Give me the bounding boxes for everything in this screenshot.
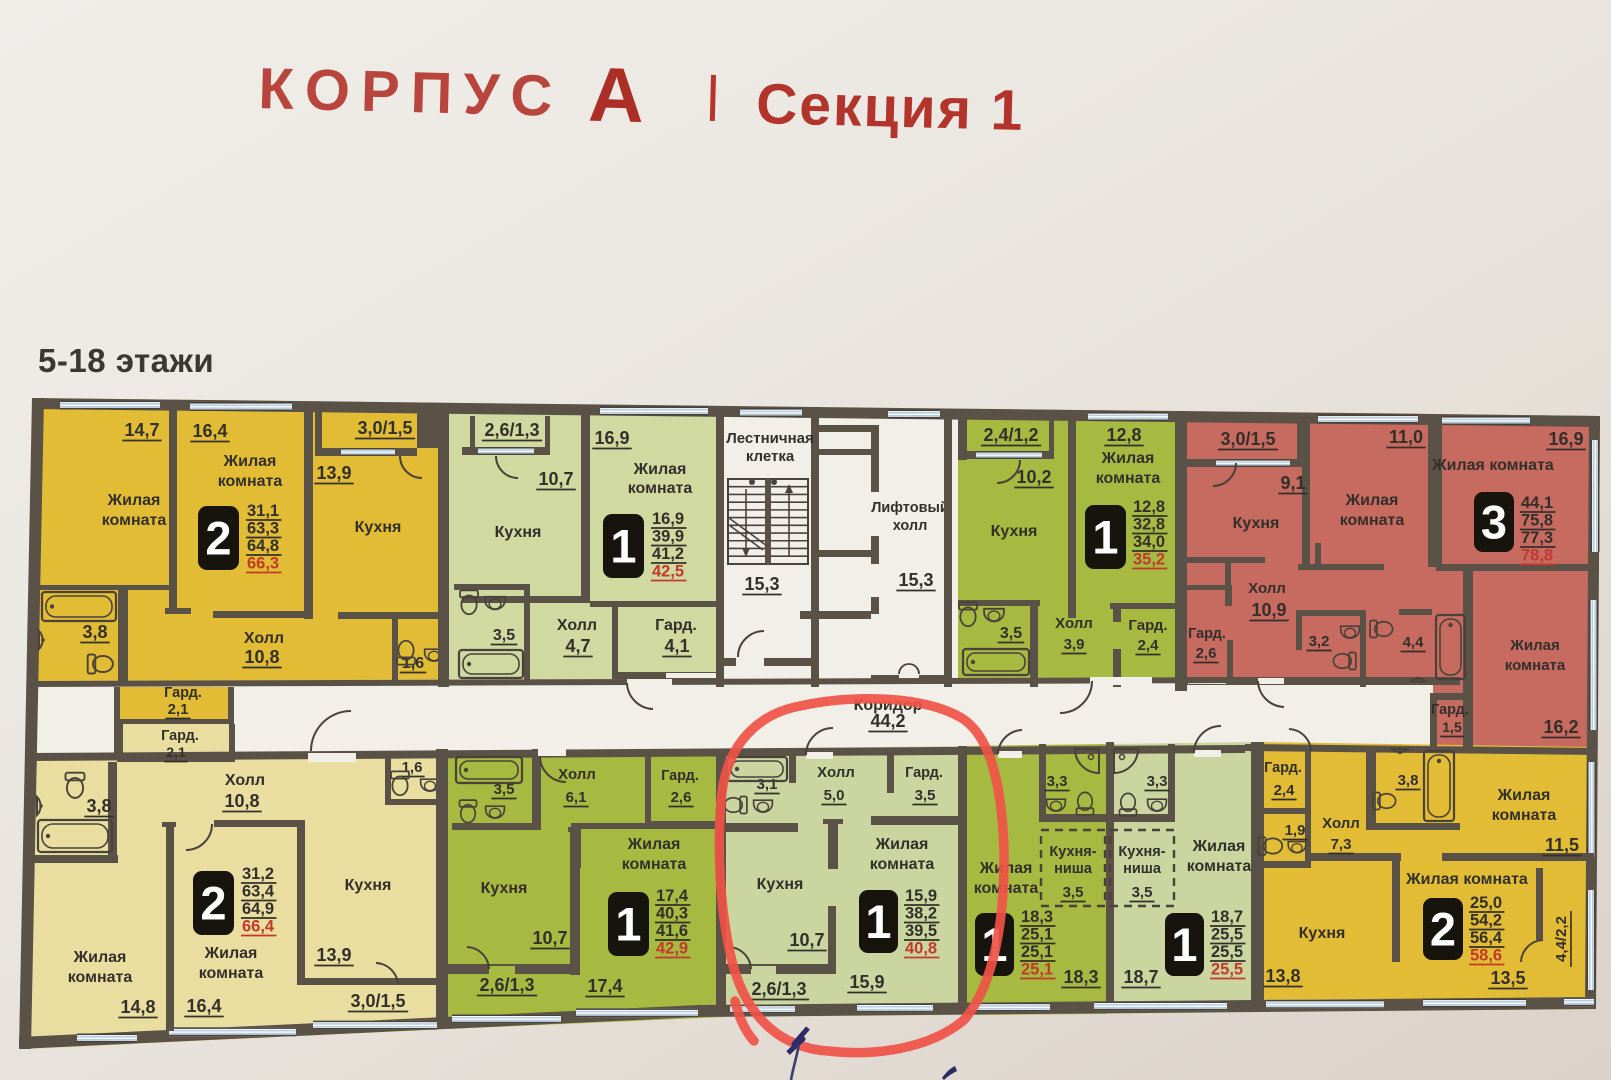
svg-text:2,6/1,3: 2,6/1,3 xyxy=(484,420,539,440)
svg-text:25,1: 25,1 xyxy=(1021,926,1053,944)
svg-text:комната: комната xyxy=(218,473,283,490)
svg-text:Холл: Холл xyxy=(225,772,265,789)
svg-text:Холл: Холл xyxy=(1055,615,1093,632)
svg-text:Жилая: Жилая xyxy=(633,461,687,478)
svg-text:Жилая: Жилая xyxy=(1345,492,1399,509)
svg-text:1: 1 xyxy=(1092,511,1118,564)
svg-text:комната: комната xyxy=(1096,470,1161,487)
svg-text:3,0/1,5: 3,0/1,5 xyxy=(357,418,412,438)
svg-text:Гард.: Гард. xyxy=(164,685,202,701)
svg-text:10,2: 10,2 xyxy=(1016,467,1051,487)
svg-text:10,8: 10,8 xyxy=(224,791,259,811)
svg-text:63,3: 63,3 xyxy=(247,520,279,538)
svg-text:14,8: 14,8 xyxy=(120,997,155,1017)
svg-text:25,1: 25,1 xyxy=(1021,943,1053,961)
svg-text:комната: комната xyxy=(68,969,133,986)
svg-text:2,6: 2,6 xyxy=(671,789,692,806)
svg-text:4,1: 4,1 xyxy=(664,636,689,656)
svg-text:54,2: 54,2 xyxy=(1470,912,1502,930)
svg-text:3,5: 3,5 xyxy=(1000,625,1022,642)
svg-text:Гард.: Гард. xyxy=(1431,702,1469,718)
svg-text:2: 2 xyxy=(205,512,231,565)
svg-text:63,4: 63,4 xyxy=(242,883,275,901)
svg-text:13,9: 13,9 xyxy=(316,463,351,483)
svg-text:17,4: 17,4 xyxy=(587,976,622,996)
svg-text:Гард.: Гард. xyxy=(1128,617,1167,634)
svg-text:10,9: 10,9 xyxy=(1251,600,1286,620)
svg-text:3: 3 xyxy=(1481,496,1507,549)
svg-text:Жилая: Жилая xyxy=(107,492,161,509)
svg-text:Лестничная: Лестничная xyxy=(726,430,814,447)
svg-text:66,3: 66,3 xyxy=(247,555,279,573)
svg-text:Жилая: Жилая xyxy=(627,836,681,853)
svg-text:5,0: 5,0 xyxy=(824,787,845,804)
svg-text:Кухня: Кухня xyxy=(345,877,392,894)
svg-text:Гард.: Гард. xyxy=(905,765,943,781)
svg-text:58,6: 58,6 xyxy=(1470,947,1502,965)
svg-text:34,0: 34,0 xyxy=(1133,533,1165,551)
svg-text:ниша: ниша xyxy=(1123,861,1162,877)
svg-text:Кухня-: Кухня- xyxy=(1118,844,1165,860)
svg-text:КОРПУС: КОРПУС xyxy=(258,56,564,129)
svg-text:комната: комната xyxy=(102,512,167,529)
svg-text:10,7: 10,7 xyxy=(789,930,824,950)
svg-text:комната: комната xyxy=(1505,657,1566,674)
svg-text:13,9: 13,9 xyxy=(316,945,351,965)
svg-text:2: 2 xyxy=(1430,903,1456,956)
svg-text:15,3: 15,3 xyxy=(744,574,779,594)
svg-text:44,2: 44,2 xyxy=(870,711,905,731)
svg-text:40,3: 40,3 xyxy=(656,905,688,923)
svg-text:40,8: 40,8 xyxy=(905,940,937,958)
svg-text:12,8: 12,8 xyxy=(1106,425,1141,445)
svg-text:3,8: 3,8 xyxy=(86,796,111,816)
svg-text:Жилая: Жилая xyxy=(1101,450,1155,467)
svg-text:Гард.: Гард. xyxy=(1188,626,1226,642)
svg-text:77,3: 77,3 xyxy=(1521,529,1553,547)
svg-text:Холл: Холл xyxy=(558,766,596,783)
svg-text:комната: комната xyxy=(1492,807,1557,824)
svg-text:41,6: 41,6 xyxy=(656,922,688,940)
svg-text:комната: комната xyxy=(870,856,935,873)
svg-text:64,9: 64,9 xyxy=(242,900,274,918)
svg-text:13,5: 13,5 xyxy=(1490,968,1525,988)
svg-text:41,2: 41,2 xyxy=(652,545,684,563)
svg-text:Кухня: Кухня xyxy=(757,876,804,893)
svg-text:11,5: 11,5 xyxy=(1545,835,1579,855)
svg-text:2: 2 xyxy=(200,877,226,930)
svg-text:75,8: 75,8 xyxy=(1521,512,1553,530)
svg-text:25,5: 25,5 xyxy=(1211,961,1243,979)
svg-text:3,5: 3,5 xyxy=(915,787,936,804)
svg-text:2,1: 2,1 xyxy=(166,744,186,760)
svg-text:3,0/1,5: 3,0/1,5 xyxy=(350,991,405,1011)
svg-text:16,9: 16,9 xyxy=(652,510,684,528)
svg-text:А: А xyxy=(587,52,645,139)
svg-text:холл: холл xyxy=(893,518,928,534)
svg-text:3,8: 3,8 xyxy=(82,622,107,642)
svg-text:2,4/1,2: 2,4/1,2 xyxy=(983,425,1038,445)
svg-text:Гард.: Гард. xyxy=(661,768,699,784)
svg-text:1,9: 1,9 xyxy=(1285,822,1306,839)
svg-text:Жилая: Жилая xyxy=(204,945,258,962)
svg-text:42,5: 42,5 xyxy=(652,563,684,581)
svg-text:25,5: 25,5 xyxy=(1211,943,1243,961)
svg-text:12,8: 12,8 xyxy=(1133,498,1165,516)
svg-text:32,8: 32,8 xyxy=(1133,516,1165,534)
svg-text:Холл: Холл xyxy=(244,630,284,647)
svg-text:10,8: 10,8 xyxy=(244,647,279,667)
svg-text:39,9: 39,9 xyxy=(652,528,684,546)
svg-text:14,7: 14,7 xyxy=(124,420,159,440)
svg-text:38,2: 38,2 xyxy=(905,905,937,923)
svg-text:15,9: 15,9 xyxy=(905,887,937,905)
svg-text:Жилая комната: Жилая комната xyxy=(1405,871,1528,888)
svg-text:25,1: 25,1 xyxy=(1021,961,1053,979)
svg-text:комната: комната xyxy=(628,480,693,497)
svg-text:10,7: 10,7 xyxy=(538,469,573,489)
svg-text:42,9: 42,9 xyxy=(656,940,688,958)
svg-text:Жилая: Жилая xyxy=(73,949,127,966)
svg-text:Жилая: Жилая xyxy=(875,836,929,853)
svg-text:Кухня-: Кухня- xyxy=(1049,844,1096,860)
svg-text:Жилая: Жилая xyxy=(1192,838,1246,855)
svg-text:16,9: 16,9 xyxy=(594,428,629,448)
svg-text:7,3: 7,3 xyxy=(1331,836,1352,853)
svg-text:Гард.: Гард. xyxy=(161,728,199,744)
svg-text:Жилая: Жилая xyxy=(1497,787,1551,804)
svg-text:Лифтовый: Лифтовый xyxy=(871,500,949,516)
svg-text:Кухня: Кухня xyxy=(481,880,528,897)
svg-text:6,1: 6,1 xyxy=(566,789,587,806)
svg-text:2,6/1,3: 2,6/1,3 xyxy=(751,979,806,999)
svg-text:Холл: Холл xyxy=(1322,815,1360,832)
svg-text:2,6/1,3: 2,6/1,3 xyxy=(479,975,534,995)
svg-text:17,4: 17,4 xyxy=(656,887,689,905)
svg-text:комната: комната xyxy=(1187,858,1252,875)
svg-text:Секция 1: Секция 1 xyxy=(755,72,1025,143)
svg-text:64,8: 64,8 xyxy=(247,537,279,555)
svg-text:13,8: 13,8 xyxy=(1265,966,1300,986)
svg-text:3,5: 3,5 xyxy=(493,627,515,644)
svg-text:10,7: 10,7 xyxy=(532,928,567,948)
svg-text:25,5: 25,5 xyxy=(1211,926,1243,944)
svg-text:35,2: 35,2 xyxy=(1133,551,1165,569)
svg-text:78,8: 78,8 xyxy=(1521,547,1553,565)
svg-text:2,6: 2,6 xyxy=(1196,645,1217,662)
svg-text:Кухня: Кухня xyxy=(1299,925,1346,942)
svg-text:3,3: 3,3 xyxy=(1147,773,1168,790)
svg-text:1,6: 1,6 xyxy=(402,759,423,776)
svg-text:18,7: 18,7 xyxy=(1211,908,1243,926)
svg-text:18,7: 18,7 xyxy=(1123,967,1158,987)
svg-text:комната: комната xyxy=(1340,512,1405,529)
svg-text:2,1: 2,1 xyxy=(168,701,189,718)
svg-text:1: 1 xyxy=(615,898,641,951)
svg-text:16,4: 16,4 xyxy=(192,421,227,441)
svg-text:66,4: 66,4 xyxy=(242,918,275,936)
svg-text:Кухня: Кухня xyxy=(991,523,1038,540)
svg-text:1: 1 xyxy=(610,520,636,573)
svg-text:3,5: 3,5 xyxy=(1132,884,1153,901)
svg-text:3,5: 3,5 xyxy=(1063,884,1084,901)
svg-text:Холл: Холл xyxy=(817,764,855,781)
svg-text:16,4: 16,4 xyxy=(186,996,221,1016)
svg-text:18,3: 18,3 xyxy=(1063,967,1098,987)
svg-text:Кухня: Кухня xyxy=(355,519,402,536)
svg-text:3,8: 3,8 xyxy=(1398,772,1419,789)
svg-text:2,4: 2,4 xyxy=(1274,782,1296,799)
svg-text:Холл: Холл xyxy=(557,617,597,634)
svg-text:4,4: 4,4 xyxy=(1403,634,1425,651)
svg-text:Жилая: Жилая xyxy=(223,453,277,470)
svg-text:4,7: 4,7 xyxy=(565,636,590,656)
svg-text:44,1: 44,1 xyxy=(1521,494,1553,512)
svg-text:Кухня: Кухня xyxy=(495,524,542,541)
svg-text:18,3: 18,3 xyxy=(1021,908,1053,926)
svg-text:3,1: 3,1 xyxy=(757,776,778,793)
svg-text:5-18 этажи: 5-18 этажи xyxy=(38,342,214,379)
svg-text:Жилая комната: Жилая комната xyxy=(1431,457,1554,474)
svg-text:3,0/1,5: 3,0/1,5 xyxy=(1220,429,1275,449)
svg-text:Холл: Холл xyxy=(1248,580,1286,597)
svg-text:15,3: 15,3 xyxy=(898,570,933,590)
svg-text:3,9: 3,9 xyxy=(1064,636,1085,653)
svg-text:Гард.: Гард. xyxy=(655,617,697,634)
svg-text:Жилая: Жилая xyxy=(1509,637,1559,654)
svg-text:1: 1 xyxy=(865,895,891,948)
svg-text:31,2: 31,2 xyxy=(242,865,274,883)
svg-text:клетка: клетка xyxy=(746,448,795,465)
svg-text:9,1: 9,1 xyxy=(1280,473,1305,493)
svg-text:ниша: ниша xyxy=(1054,861,1093,877)
svg-text:56,4: 56,4 xyxy=(1470,929,1503,947)
svg-text:16,2: 16,2 xyxy=(1543,717,1578,737)
svg-text:25,0: 25,0 xyxy=(1470,894,1502,912)
svg-text:комната: комната xyxy=(199,965,264,982)
svg-text:3,2: 3,2 xyxy=(1309,633,1330,650)
svg-text:31,1: 31,1 xyxy=(247,502,279,520)
svg-text:1,5: 1,5 xyxy=(1442,719,1462,735)
svg-text:11,0: 11,0 xyxy=(1389,427,1423,447)
svg-text:1: 1 xyxy=(1171,918,1197,971)
svg-text:39,5: 39,5 xyxy=(905,922,937,940)
svg-text:16,9: 16,9 xyxy=(1548,429,1583,449)
svg-text:4,4/2,2: 4,4/2,2 xyxy=(1553,916,1570,962)
svg-text:15,9: 15,9 xyxy=(849,972,884,992)
svg-text:Кухня: Кухня xyxy=(1233,515,1280,532)
svg-text:3,3: 3,3 xyxy=(1047,773,1068,790)
svg-text:Гард.: Гард. xyxy=(1264,760,1302,776)
svg-text:комната: комната xyxy=(622,856,687,873)
svg-text:2,4: 2,4 xyxy=(1138,637,1160,654)
